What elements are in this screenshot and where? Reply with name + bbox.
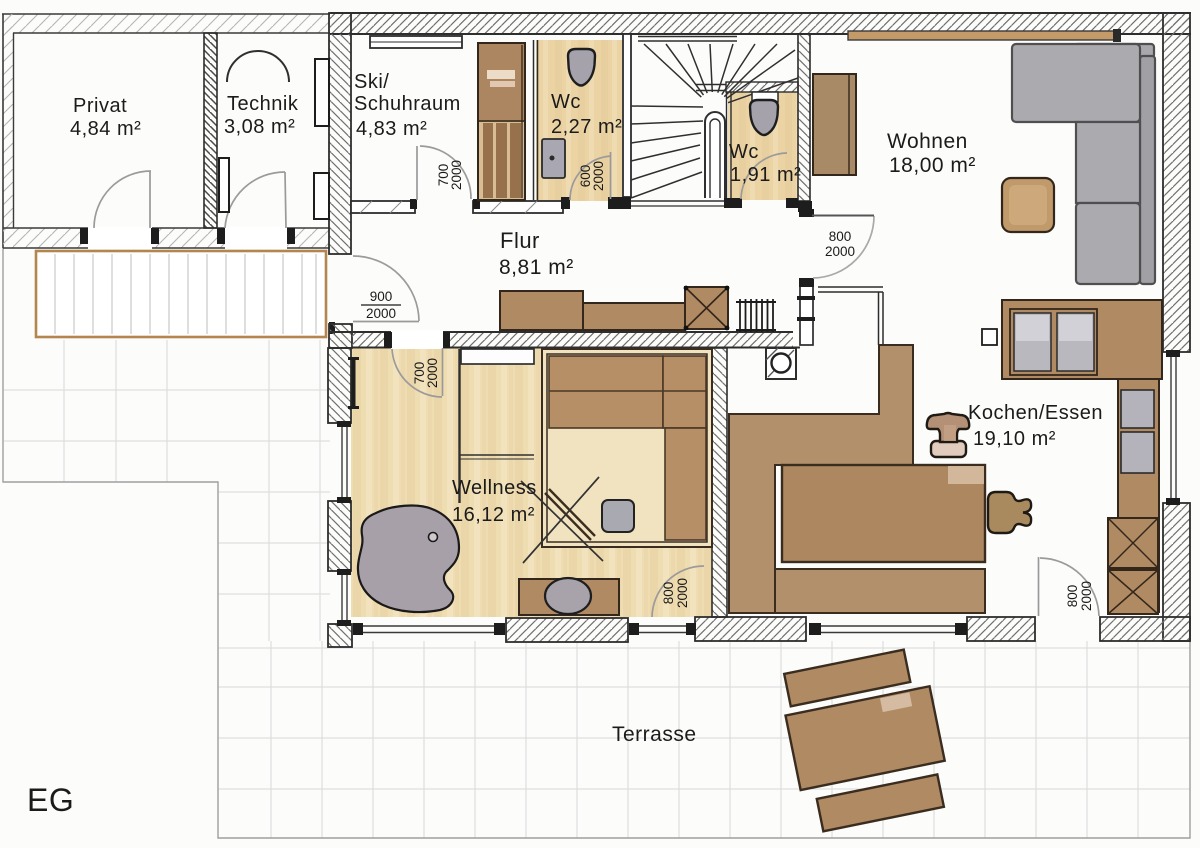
svg-text:16,12 m²: 16,12 m²	[452, 504, 535, 526]
svg-text:18,00 m²: 18,00 m²	[889, 154, 976, 177]
svg-text:4,83 m²: 4,83 m²	[356, 118, 427, 140]
svg-text:1,91 m²: 1,91 m²	[730, 164, 801, 186]
svg-text:EG: EG	[27, 782, 74, 818]
svg-text:900: 900	[370, 289, 393, 304]
svg-text:2000: 2000	[449, 160, 464, 190]
svg-text:Flur: Flur	[500, 228, 540, 253]
svg-text:800: 800	[1065, 585, 1080, 608]
svg-text:Privat: Privat	[73, 95, 127, 117]
svg-text:Ski/: Ski/	[354, 71, 389, 93]
svg-text:3,08 m²: 3,08 m²	[224, 116, 295, 138]
svg-text:Wc: Wc	[729, 141, 759, 163]
svg-text:2000: 2000	[825, 244, 855, 259]
svg-text:2000: 2000	[591, 161, 606, 191]
svg-text:Schuhraum: Schuhraum	[354, 93, 461, 115]
svg-text:Wellness: Wellness	[452, 477, 537, 499]
svg-text:2000: 2000	[425, 358, 440, 388]
svg-text:800: 800	[661, 582, 676, 605]
svg-text:8,81 m²: 8,81 m²	[499, 256, 574, 279]
svg-text:19,10 m²: 19,10 m²	[973, 428, 1056, 450]
svg-text:2,27 m²: 2,27 m²	[551, 116, 622, 138]
svg-text:Terrasse: Terrasse	[612, 723, 697, 746]
svg-text:Wohnen: Wohnen	[887, 130, 968, 153]
svg-text:Kochen/Essen: Kochen/Essen	[968, 402, 1103, 424]
svg-text:2000: 2000	[1079, 581, 1094, 611]
svg-text:800: 800	[829, 229, 852, 244]
svg-text:2000: 2000	[675, 578, 690, 608]
svg-text:2000: 2000	[366, 306, 396, 321]
svg-text:Technik: Technik	[227, 93, 299, 115]
svg-text:4,84 m²: 4,84 m²	[70, 118, 141, 140]
svg-text:Wc: Wc	[551, 91, 581, 113]
